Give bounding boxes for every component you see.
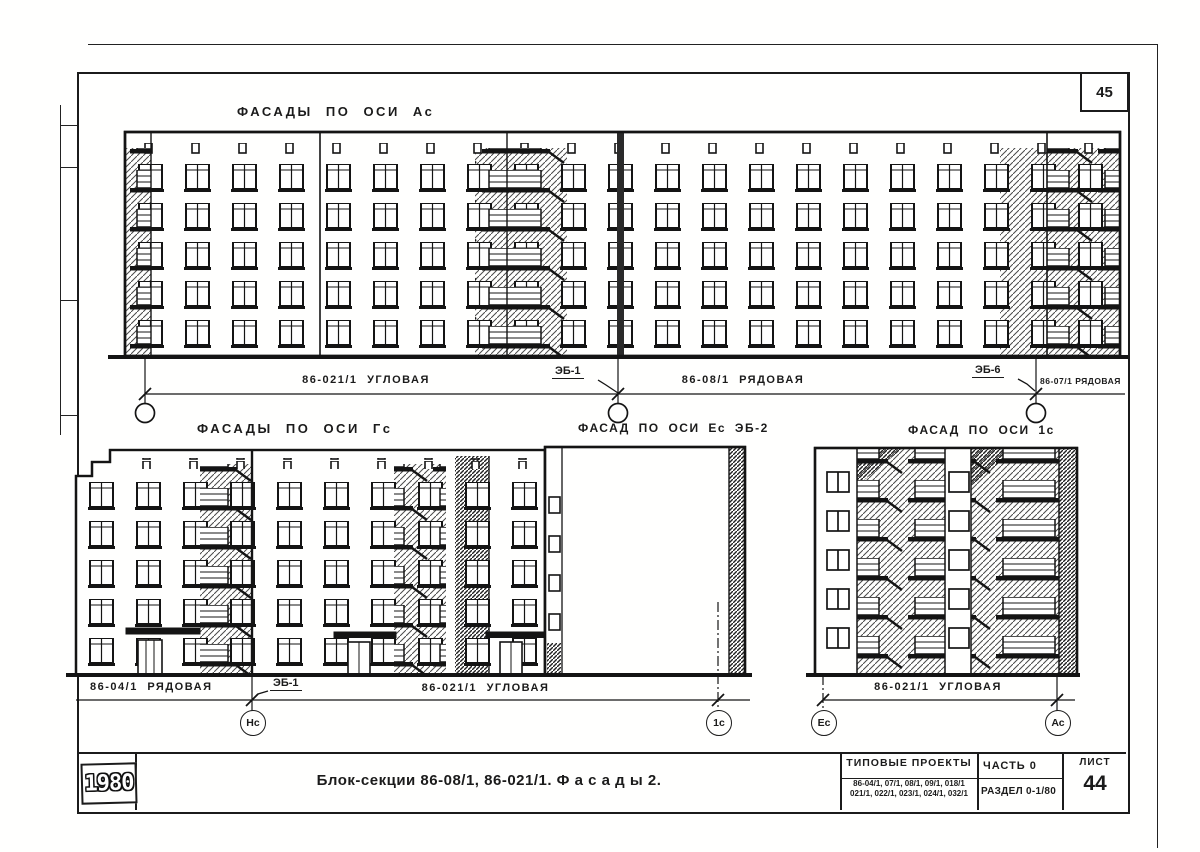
facade-axis-as xyxy=(125,132,1120,356)
title-block-divider xyxy=(977,752,979,810)
axis-circle-1s: 1с xyxy=(706,710,732,736)
middle-center-facade-title: ФАСАД ПО ОСИ Ес ЭБ-2 xyxy=(578,421,769,435)
typical-projects-line2: 021/1, 022/1, 023/1, 024/1, 032/1 xyxy=(841,789,977,798)
axis-circle-es: Ес xyxy=(811,710,837,736)
typical-projects-line1: 86-04/1, 07/1, 08/1, 09/1, 018/1 xyxy=(841,779,977,788)
dim-label-86-021-uglovaya-bottom-left: 86-021/1 УГЛОВАЯ xyxy=(398,682,573,694)
title-block-main-title: Блок-секции 86-08/1, 86-021/1. Ф а с а д… xyxy=(140,772,838,789)
year-stamp: 1980 xyxy=(84,770,134,796)
dim-label-86-07-ryadovaya: 86-07/1 РЯДОВАЯ xyxy=(1040,376,1130,386)
sheet-label: ЛИСТ xyxy=(1064,757,1126,768)
axis-circle-as: Ас xyxy=(1045,710,1071,736)
facade-axis-gs xyxy=(76,450,545,675)
middle-right-facade-title: ФАСАД ПО ОСИ 1с xyxy=(908,423,1055,437)
typical-projects-header: ТИПОВЫЕ ПРОЕКТЫ xyxy=(842,757,976,769)
part-label: ЧАСТЬ 0 xyxy=(983,760,1037,772)
section-label: РАЗДЕЛ 0-1/80 xyxy=(981,786,1056,797)
middle-left-facade-title: ФАСАДЫ ПО ОСИ Гс xyxy=(197,421,393,436)
marker-eb1-top: ЭБ-1 xyxy=(552,365,584,379)
marker-eb6: ЭБ-6 xyxy=(972,364,1004,378)
dim-label-86-021-uglovaya-bottom-right: 86-021/1 УГЛОВАЯ xyxy=(858,681,1018,693)
dim-label-86-04-ryadovaya: 86-04/1 РЯДОВАЯ xyxy=(90,681,212,693)
sheet-number: 44 xyxy=(1064,772,1126,796)
facade-axis-1s xyxy=(815,448,1077,675)
year-stamp-box: 1980 xyxy=(80,762,137,804)
axis-circle-ns: Нс xyxy=(240,710,266,736)
title-block-top-border xyxy=(77,752,1126,754)
drawing-sheet: 45 xyxy=(0,0,1200,852)
marker-eb1-bottom: ЭБ-1 xyxy=(270,677,302,691)
dim-label-86-021-uglovaya-top: 86-021/1 УГЛОВАЯ xyxy=(276,374,456,386)
facade-axis-es xyxy=(545,447,745,675)
top-facade-title: ФАСАДЫ ПО ОСИ Ас xyxy=(237,104,434,119)
dim-label-86-08-ryadovaya: 86-08/1 РЯДОВАЯ xyxy=(658,374,828,386)
